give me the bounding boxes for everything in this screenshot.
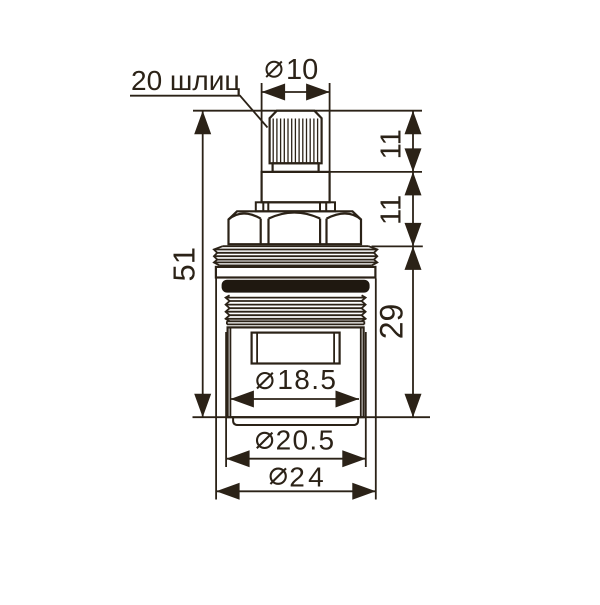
svg-text:20 шлиц: 20 шлиц bbox=[131, 65, 240, 96]
svg-text:51: 51 bbox=[167, 247, 202, 281]
svg-text:20.5: 20.5 bbox=[276, 425, 335, 456]
svg-text:10: 10 bbox=[286, 54, 318, 86]
svg-text:24: 24 bbox=[289, 462, 324, 493]
svg-text:18.5: 18.5 bbox=[277, 364, 336, 395]
svg-text:11: 11 bbox=[376, 129, 408, 159]
svg-text:29: 29 bbox=[374, 304, 410, 340]
svg-text:11: 11 bbox=[376, 195, 408, 225]
